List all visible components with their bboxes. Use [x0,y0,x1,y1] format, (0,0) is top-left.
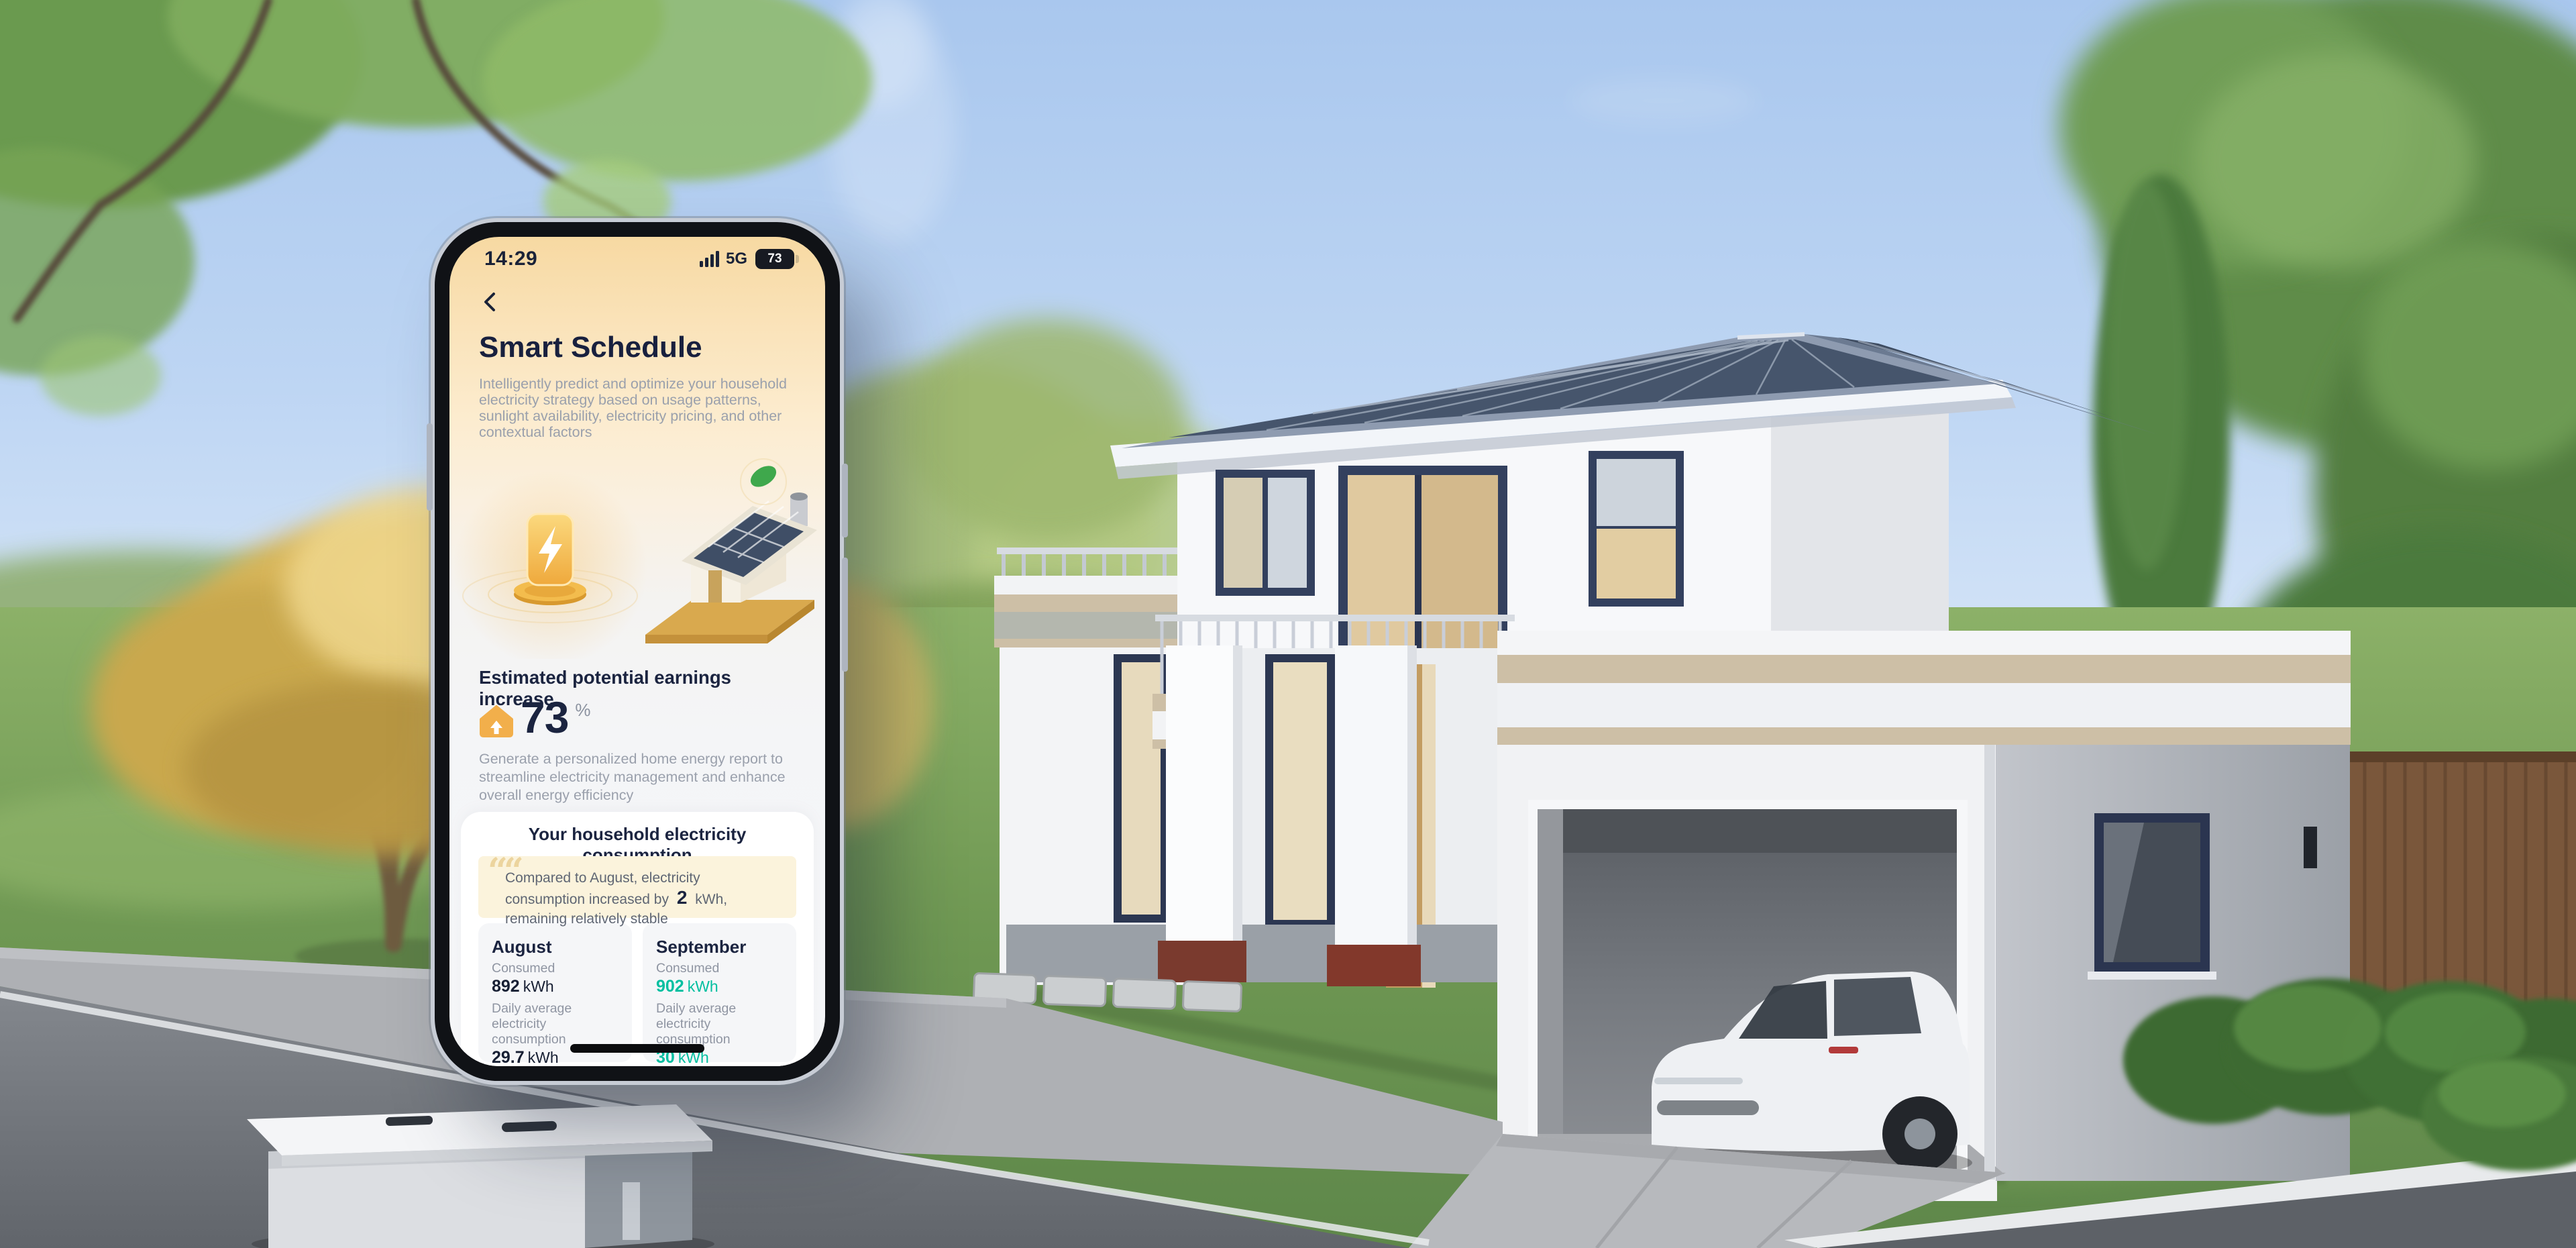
energy-illustration [449,451,825,659]
daily-average-unit: kWh [528,1049,559,1066]
app-screen[interactable]: 14:29 5G 73 Smart Schedule Intelligently… [449,237,825,1066]
consumed-label: Consumed [492,961,619,976]
marketing-scene: 14:29 5G 73 Smart Schedule Intelligently… [0,0,2576,1248]
consumed-unit: kWh [523,978,554,995]
volume-button[interactable] [842,464,848,537]
signal-icon [700,251,719,267]
house-up-arrow-icon [479,705,514,738]
garage-window [2088,813,2216,980]
daily-average-value: 29.7 [492,1048,525,1066]
consumed-value: 902 [656,977,684,996]
smartphone: 14:29 5G 73 Smart Schedule Intelligently… [435,222,840,1081]
mute-switch[interactable] [427,423,433,511]
power-button[interactable] [842,558,848,672]
earnings-value: 73 [521,696,568,738]
wall-lamp [2304,827,2317,868]
back-button[interactable] [479,291,502,313]
utility-box [247,1104,714,1248]
consumed-value: 892 [492,977,520,996]
earnings-unit: % [575,700,590,738]
consumed-label: Consumed [656,961,783,976]
solar-house-icon [645,459,817,643]
earnings-note: Generate a personalized home energy repo… [479,750,793,804]
house-scene-render [0,0,2576,1248]
network-label: 5G [726,250,747,268]
comparison-prefix: Compared to August, electricity consumpt… [505,870,700,907]
month-name: August [492,937,619,958]
battery-percent: 73 [767,252,782,266]
status-bar: 14:29 5G 73 [449,237,825,270]
page-title: Smart Schedule [479,332,796,363]
consumption-card-title: Your household electricity consumption [478,820,796,848]
earnings-label: Estimated potential earnings increase [479,667,796,691]
page-description: Intelligently predict and optimize your … [479,376,793,440]
battery-icon: 73 [755,249,794,269]
month-card-august: August Consumed 892kWh Daily average ele… [478,923,632,1062]
clock: 14:29 [484,248,537,270]
consumption-card: Your household electricity consumption “… [461,812,814,1066]
month-card-september: September Consumed 902kWh Daily average … [643,923,796,1062]
chevron-left-icon [486,294,494,310]
daily-average-label: Daily average electricity consumption [656,1001,783,1047]
double-quote-icon: ““ [488,851,520,892]
comparison-callout: ““ Compared to August, electricity consu… [478,856,796,918]
consumed-unit: kWh [688,978,718,995]
home-indicator[interactable] [570,1044,704,1053]
comparison-delta: 2 [673,887,692,908]
daily-average-label: Daily average electricity consumption [492,1001,619,1047]
month-name: September [656,937,783,958]
leaf-icon [747,462,780,491]
